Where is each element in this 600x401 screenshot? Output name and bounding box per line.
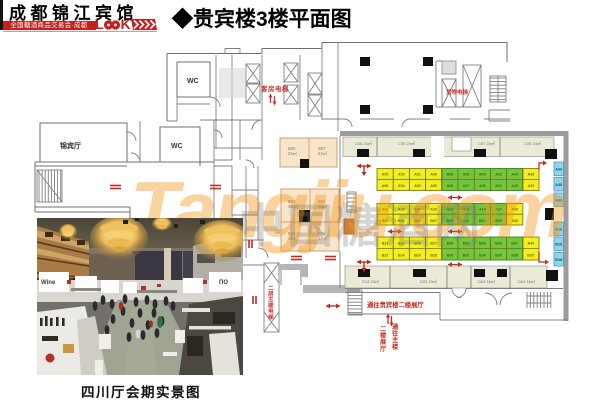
svg-text:客房电梯: 客房电梯 <box>260 84 289 93</box>
svg-text:L: L <box>95 17 104 31</box>
svg-text:通往主楼: 通往主楼 <box>392 323 399 351</box>
svg-text:通往贵宾楼二楼展厅: 通往贵宾楼二楼展厅 <box>367 300 424 309</box>
svg-text:ΠO: ΠO <box>219 280 228 286</box>
svg-text:D63 16㎡: D63 16㎡ <box>478 278 495 284</box>
svg-text:C08 24㎡: C08 24㎡ <box>524 140 541 146</box>
svg-text:WC: WC <box>171 143 183 150</box>
svg-text:C06 24㎡: C06 24㎡ <box>355 140 372 146</box>
svg-text:Wine: Wine <box>41 280 56 286</box>
svg-text:C07 24㎡: C07 24㎡ <box>478 140 495 146</box>
svg-text:D13 23㎡: D13 23㎡ <box>362 278 379 284</box>
svg-text:二层五楼电梯: 二层五楼电梯 <box>268 285 274 321</box>
svg-text:二楼展厅: 二楼展厅 <box>380 326 387 353</box>
svg-text:D53 23㎡: D53 23㎡ <box>420 278 437 284</box>
svg-text:货物电梯: 货物电梯 <box>446 88 469 96</box>
svg-text:C09 24㎡: C09 24㎡ <box>398 140 415 146</box>
svg-text:D64 16㎡: D64 16㎡ <box>518 278 535 284</box>
svg-text:B18: B18 <box>555 258 562 262</box>
svg-text:锦宾厅: 锦宾厅 <box>60 141 81 150</box>
svg-text:K: K <box>121 17 131 31</box>
svg-text:WC: WC <box>187 78 199 85</box>
